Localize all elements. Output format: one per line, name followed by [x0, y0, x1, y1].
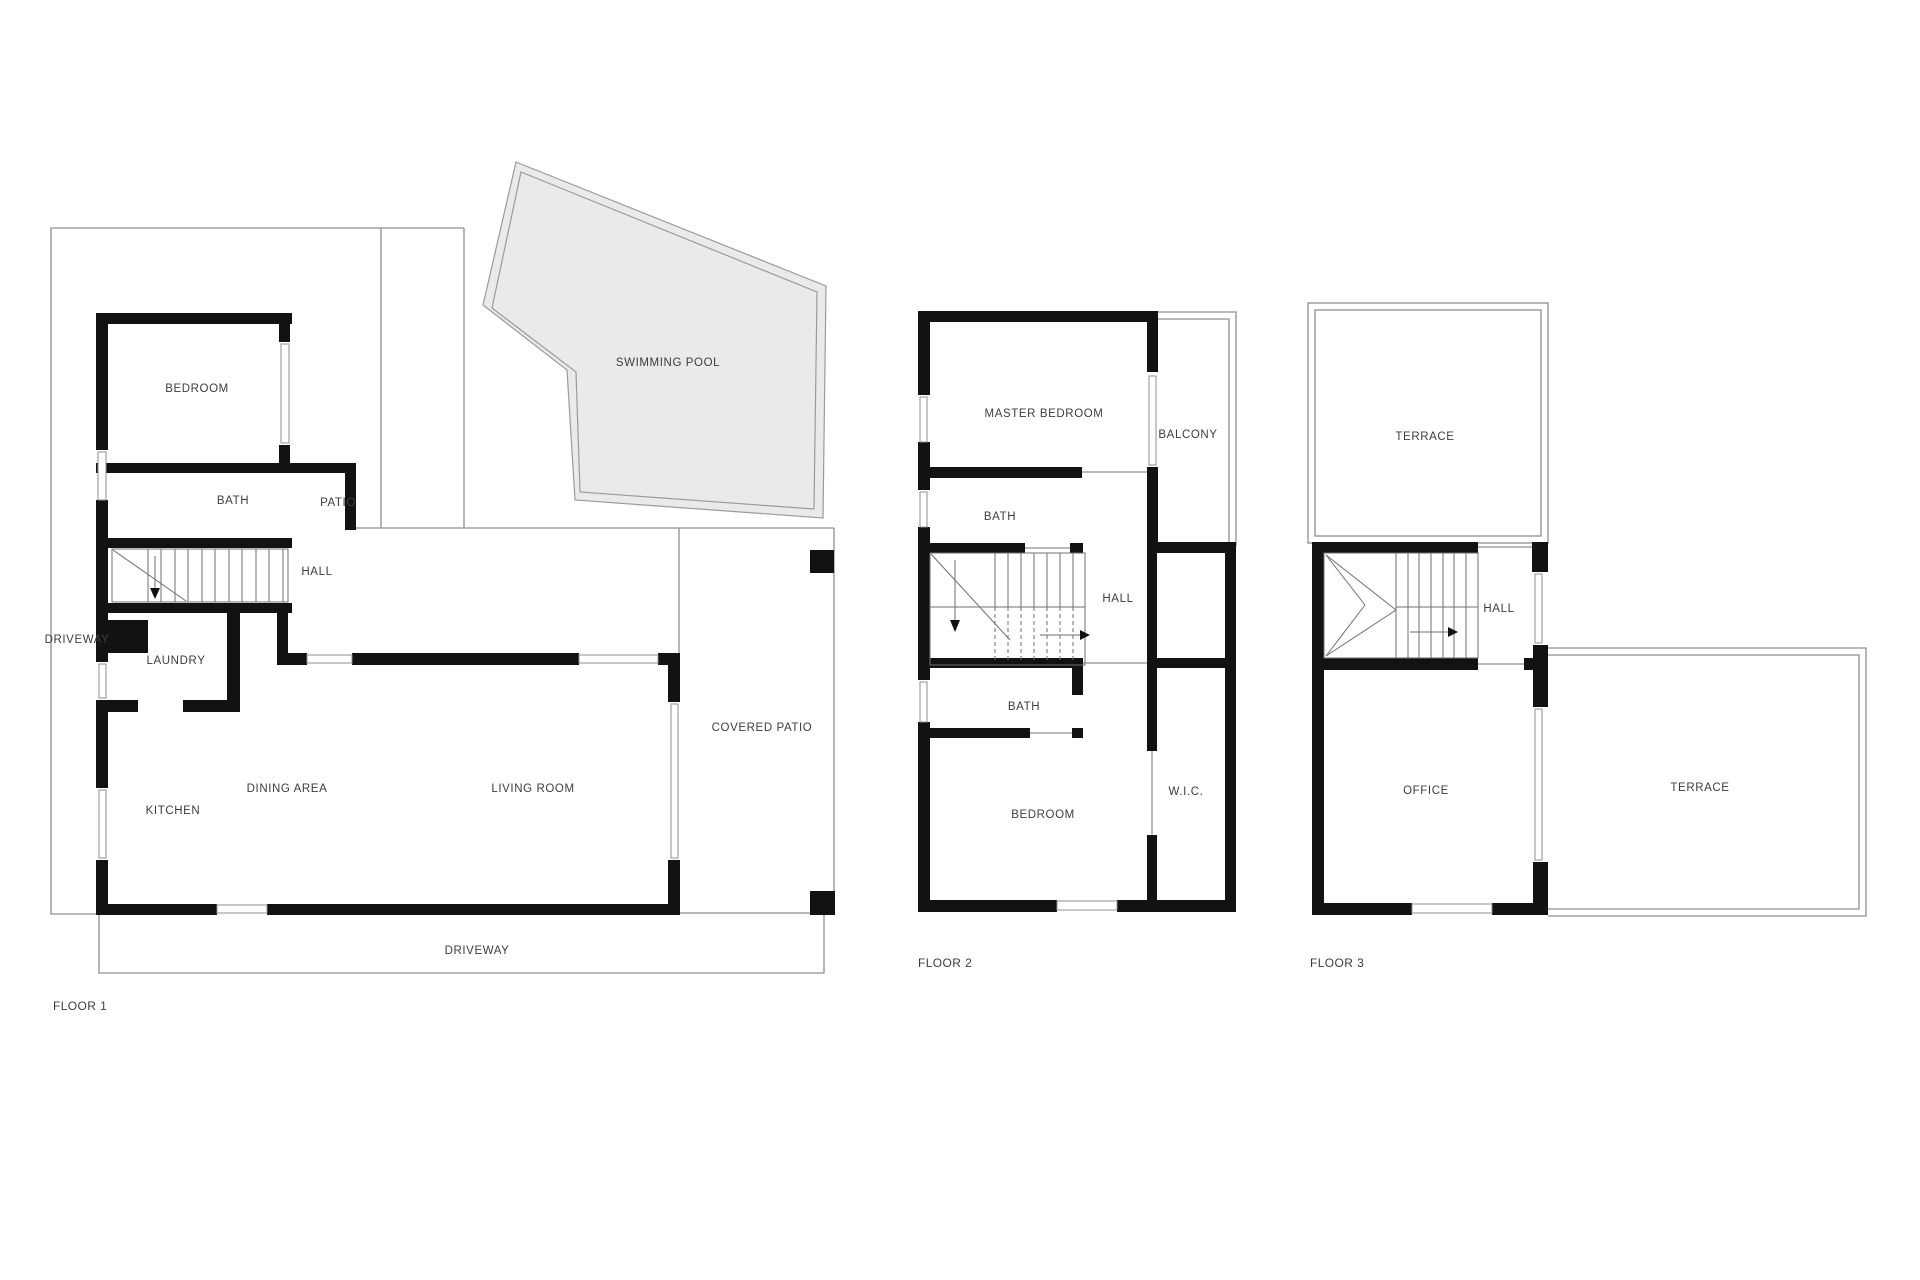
floor3-plan: TERRACE HALL OFFICE TERRACE FLOOR 3	[1308, 303, 1866, 970]
stairs-down-arrow	[950, 620, 960, 632]
room-label-living-room: LIVING ROOM	[491, 783, 574, 795]
room-label-driveway-side: DRIVEWAY	[45, 634, 110, 646]
room-label-dining-area: DINING AREA	[247, 783, 328, 795]
room-label-bath-upper: BATH	[984, 511, 1016, 523]
floor1-stairs	[112, 549, 288, 602]
room-label-hall: HALL	[301, 566, 332, 578]
room-label-master-bedroom: MASTER BEDROOM	[985, 408, 1104, 420]
room-label-driveway-bottom: DRIVEWAY	[445, 945, 510, 957]
floorplan-canvas: BEDROOM BATH HALL PATIO SWIMMING POOL DR…	[0, 0, 1920, 1280]
laundry-unit-block	[105, 620, 148, 653]
floor1-plan: BEDROOM BATH HALL PATIO SWIMMING POOL DR…	[45, 162, 835, 1013]
floor2-door-lines	[1025, 472, 1152, 835]
floor3-stairs	[1324, 553, 1478, 658]
stairs-down-arrow	[150, 588, 160, 599]
room-label-covered-patio: COVERED PATIO	[712, 722, 813, 734]
floor2-walls	[918, 311, 1236, 912]
room-label-bedroom: BEDROOM	[165, 383, 229, 395]
room-label-kitchen: KITCHEN	[146, 805, 201, 817]
room-label-wic: W.I.C.	[1169, 786, 1204, 798]
room-label-laundry: LAUNDRY	[147, 655, 206, 667]
room-label-office: OFFICE	[1403, 785, 1449, 797]
patio-pillar-bottom	[810, 891, 835, 915]
room-label-swimming-pool: SWIMMING POOL	[616, 357, 720, 369]
floor2-windows	[920, 376, 1156, 910]
room-label-terrace-top: TERRACE	[1395, 431, 1454, 443]
floor3-title: FLOOR 3	[1310, 956, 1364, 970]
room-label-hall: HALL	[1483, 603, 1514, 615]
room-label-bedroom: BEDROOM	[1011, 809, 1075, 821]
room-label-patio: PATIO	[320, 497, 356, 509]
stairs-direction-arrow	[1448, 627, 1458, 637]
floor1-title: FLOOR 1	[53, 999, 107, 1013]
swimming-pool-shape	[483, 162, 826, 518]
room-label-balcony: BALCONY	[1158, 429, 1217, 441]
floor2-title: FLOOR 2	[918, 956, 972, 970]
floor2-stairs	[930, 553, 1090, 665]
patio-pillar-top	[810, 550, 834, 573]
floor3-terrace-top-outline	[1308, 303, 1548, 543]
room-label-hall: HALL	[1102, 593, 1133, 605]
floor3-walls	[1312, 542, 1548, 915]
room-label-bath-lower: BATH	[1008, 701, 1040, 713]
floor2-plan: MASTER BEDROOM BALCONY BATH HALL BATH BE…	[918, 311, 1236, 970]
room-label-terrace-right: TERRACE	[1670, 782, 1729, 794]
room-label-bath: BATH	[217, 495, 249, 507]
